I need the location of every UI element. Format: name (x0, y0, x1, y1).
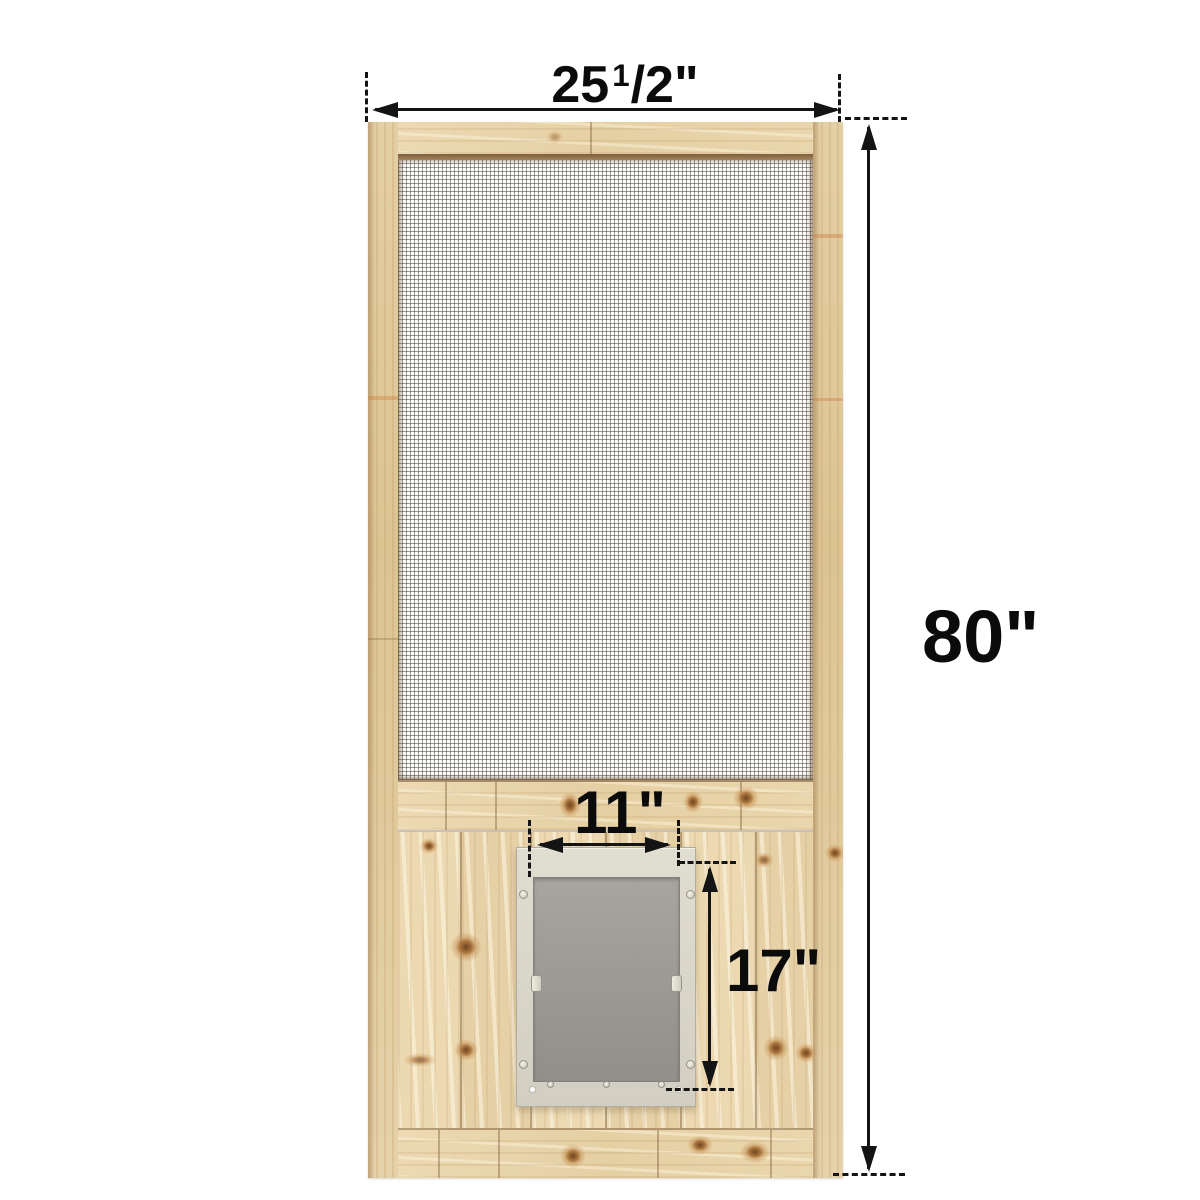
width-dimension-arrow (372, 100, 840, 120)
wood-joint-seam (590, 122, 592, 154)
wood-joint-seam (657, 1130, 659, 1178)
wood-knot (560, 1144, 586, 1168)
pet-door-flap (533, 877, 680, 1082)
wood-joint-seam (368, 638, 398, 640)
wood-knot (450, 932, 482, 962)
petdoor-height-extension-top (679, 861, 736, 864)
wood-grain-streak (813, 398, 843, 401)
wood-grain-streak (813, 234, 843, 238)
flap-hinge-tab (671, 975, 682, 992)
wood-knot (546, 130, 564, 144)
wood-knot (825, 844, 843, 862)
screw-icon (686, 890, 695, 899)
height-dimension-arrow (859, 124, 879, 1172)
height-extension-line-top (845, 117, 907, 120)
right-stile (813, 122, 843, 1178)
wood-knot (740, 1141, 770, 1163)
wood-joint-seam (495, 782, 497, 830)
wood-joint-seam (445, 782, 447, 830)
wood-knot (687, 1135, 713, 1155)
top-rail (398, 122, 813, 154)
wood-knot (420, 838, 438, 854)
screw-icon (658, 1081, 665, 1088)
screw-icon (603, 1081, 610, 1088)
screw-icon (547, 1081, 554, 1088)
wood-joint-seam (438, 1130, 440, 1178)
petdoor-height-extension-bottom (666, 1088, 734, 1091)
wood-knot (454, 1039, 478, 1061)
wood-knot (795, 1043, 817, 1063)
wood-knot (733, 786, 759, 810)
panel-plank (398, 832, 460, 1128)
bottom-rail (398, 1128, 813, 1178)
wood-knot (683, 791, 703, 813)
wood-joint-seam (770, 1130, 772, 1178)
wood-joint-seam (498, 1130, 500, 1178)
width-extension-line-left (365, 72, 368, 122)
height-extension-line-bottom (833, 1173, 905, 1176)
product-dimension-diagram: 251/2" 80" 11" 17" (0, 0, 1200, 1200)
petdoor-width-extension-left (528, 820, 531, 877)
rivet-icon (530, 1087, 535, 1092)
screw-icon (686, 1060, 695, 1069)
left-stile (368, 122, 398, 1178)
petdoor-height-label: 17" (726, 941, 821, 1001)
wood-knot (763, 1035, 789, 1061)
wood-knot (754, 852, 774, 868)
petdoor-height-arrow (700, 866, 720, 1087)
wood-grain-streak (368, 396, 398, 400)
wood-knot (403, 1053, 437, 1067)
screen-door (368, 122, 843, 1178)
flap-hinge-tab (531, 975, 542, 992)
width-extension-line-right (838, 74, 841, 122)
pet-door-frame (516, 847, 696, 1107)
petdoor-width-arrow (537, 835, 671, 855)
petdoor-width-label: 11" (574, 783, 666, 843)
mesh-screen (398, 160, 813, 780)
screw-icon (519, 1060, 528, 1069)
height-dimension-label: 80" (922, 600, 1039, 674)
screw-icon (519, 890, 528, 899)
width-value-numerator: 1 (612, 58, 629, 93)
petdoor-width-extension-right (677, 820, 680, 866)
